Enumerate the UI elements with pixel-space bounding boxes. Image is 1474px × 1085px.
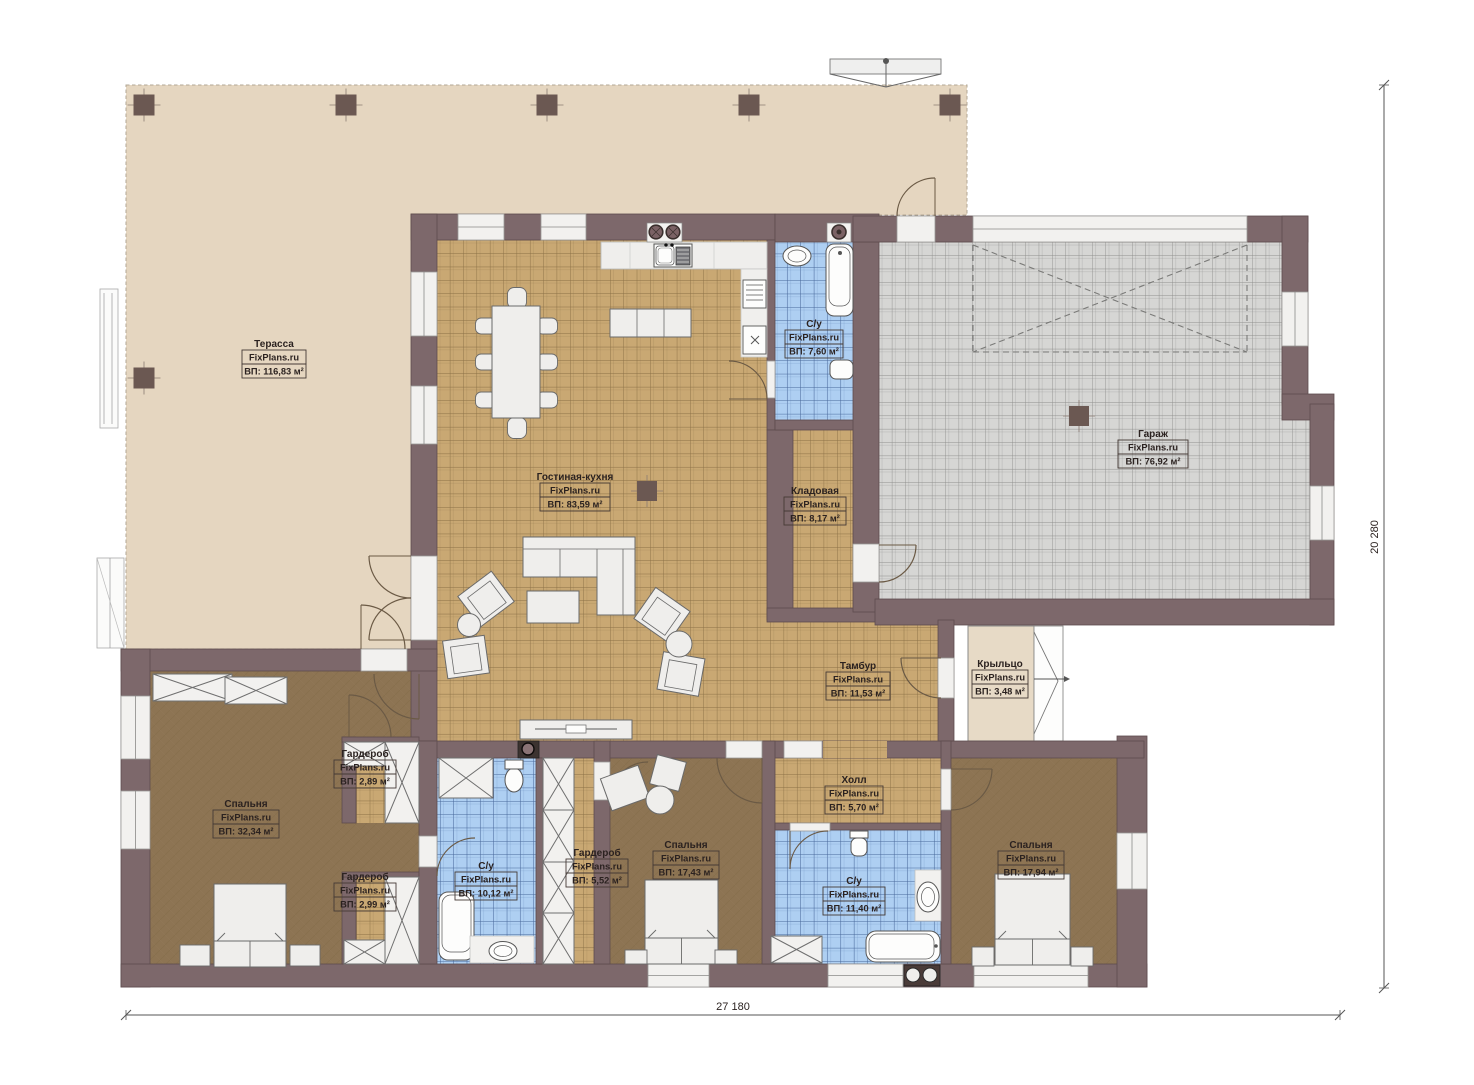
svg-text:Терасса: Терасса xyxy=(254,339,294,350)
svg-text:ВП: 8,17 м²: ВП: 8,17 м² xyxy=(790,514,840,524)
svg-text:Спальня: Спальня xyxy=(664,840,707,851)
svg-text:FixPlans.ru: FixPlans.ru xyxy=(221,813,271,823)
svg-text:FixPlans.ru: FixPlans.ru xyxy=(829,789,879,799)
svg-text:FixPlans.ru: FixPlans.ru xyxy=(1128,443,1178,453)
svg-text:ВП: 2,99 м²: ВП: 2,99 м² xyxy=(340,900,390,910)
svg-text:FixPlans.ru: FixPlans.ru xyxy=(829,890,879,900)
svg-text:Спальня: Спальня xyxy=(224,799,267,810)
svg-text:Гардероб: Гардероб xyxy=(341,748,388,760)
svg-text:Крыльцо: Крыльцо xyxy=(977,659,1023,670)
svg-text:ВП: 76,92 м²: ВП: 76,92 м² xyxy=(1126,457,1181,467)
svg-text:ВП: 32,34 м²: ВП: 32,34 м² xyxy=(219,827,274,837)
svg-text:ВП: 5,70 м²: ВП: 5,70 м² xyxy=(829,803,879,813)
svg-text:FixPlans.ru: FixPlans.ru xyxy=(340,763,390,773)
svg-text:Гардероб: Гардероб xyxy=(341,871,388,883)
svg-text:ВП: 3,48 м²: ВП: 3,48 м² xyxy=(975,687,1025,697)
svg-text:ВП: 83,59 м²: ВП: 83,59 м² xyxy=(548,500,603,510)
svg-text:ВП: 2,89 м²: ВП: 2,89 м² xyxy=(340,777,390,787)
svg-text:FixPlans.ru: FixPlans.ru xyxy=(340,886,390,896)
svg-text:ВП: 5,52 м²: ВП: 5,52 м² xyxy=(572,876,622,886)
svg-text:FixPlans.ru: FixPlans.ru xyxy=(550,486,600,496)
svg-text:ВП: 11,40 м²: ВП: 11,40 м² xyxy=(827,904,881,914)
svg-text:ВП: 116,83 м²: ВП: 116,83 м² xyxy=(244,367,304,377)
svg-text:20 280: 20 280 xyxy=(1369,520,1381,554)
svg-text:FixPlans.ru: FixPlans.ru xyxy=(661,854,711,864)
svg-text:FixPlans.ru: FixPlans.ru xyxy=(1006,854,1056,864)
svg-text:Тамбур: Тамбур xyxy=(840,660,876,672)
svg-text:Спальня: Спальня xyxy=(1009,840,1052,851)
svg-text:Гостиная-кухня: Гостиная-кухня xyxy=(537,472,614,483)
svg-text:ВП: 7,60 м²: ВП: 7,60 м² xyxy=(789,347,839,357)
svg-text:С/у: С/у xyxy=(806,319,822,330)
svg-text:Холл: Холл xyxy=(841,775,866,786)
svg-text:Гардероб: Гардероб xyxy=(573,847,620,859)
svg-text:Кладовая: Кладовая xyxy=(791,486,839,497)
svg-text:ВП: 17,43 м²: ВП: 17,43 м² xyxy=(659,868,714,878)
svg-text:С/у: С/у xyxy=(478,861,494,872)
svg-text:ВП: 17,94 м²: ВП: 17,94 м² xyxy=(1004,868,1059,878)
svg-text:FixPlans.ru: FixPlans.ru xyxy=(249,353,299,363)
svg-text:FixPlans.ru: FixPlans.ru xyxy=(572,862,622,872)
svg-text:FixPlans.ru: FixPlans.ru xyxy=(461,875,511,885)
svg-text:FixPlans.ru: FixPlans.ru xyxy=(833,675,883,685)
svg-text:ВП: 11,53 м²: ВП: 11,53 м² xyxy=(831,689,885,699)
svg-text:FixPlans.ru: FixPlans.ru xyxy=(790,500,840,510)
svg-text:ВП: 10,12 м²: ВП: 10,12 м² xyxy=(459,889,514,899)
svg-text:FixPlans.ru: FixPlans.ru xyxy=(789,333,839,343)
svg-text:С/у: С/у xyxy=(846,876,862,887)
svg-text:FixPlans.ru: FixPlans.ru xyxy=(975,673,1025,683)
svg-text:27 180: 27 180 xyxy=(716,1001,750,1013)
svg-text:Гараж: Гараж xyxy=(1138,429,1169,440)
